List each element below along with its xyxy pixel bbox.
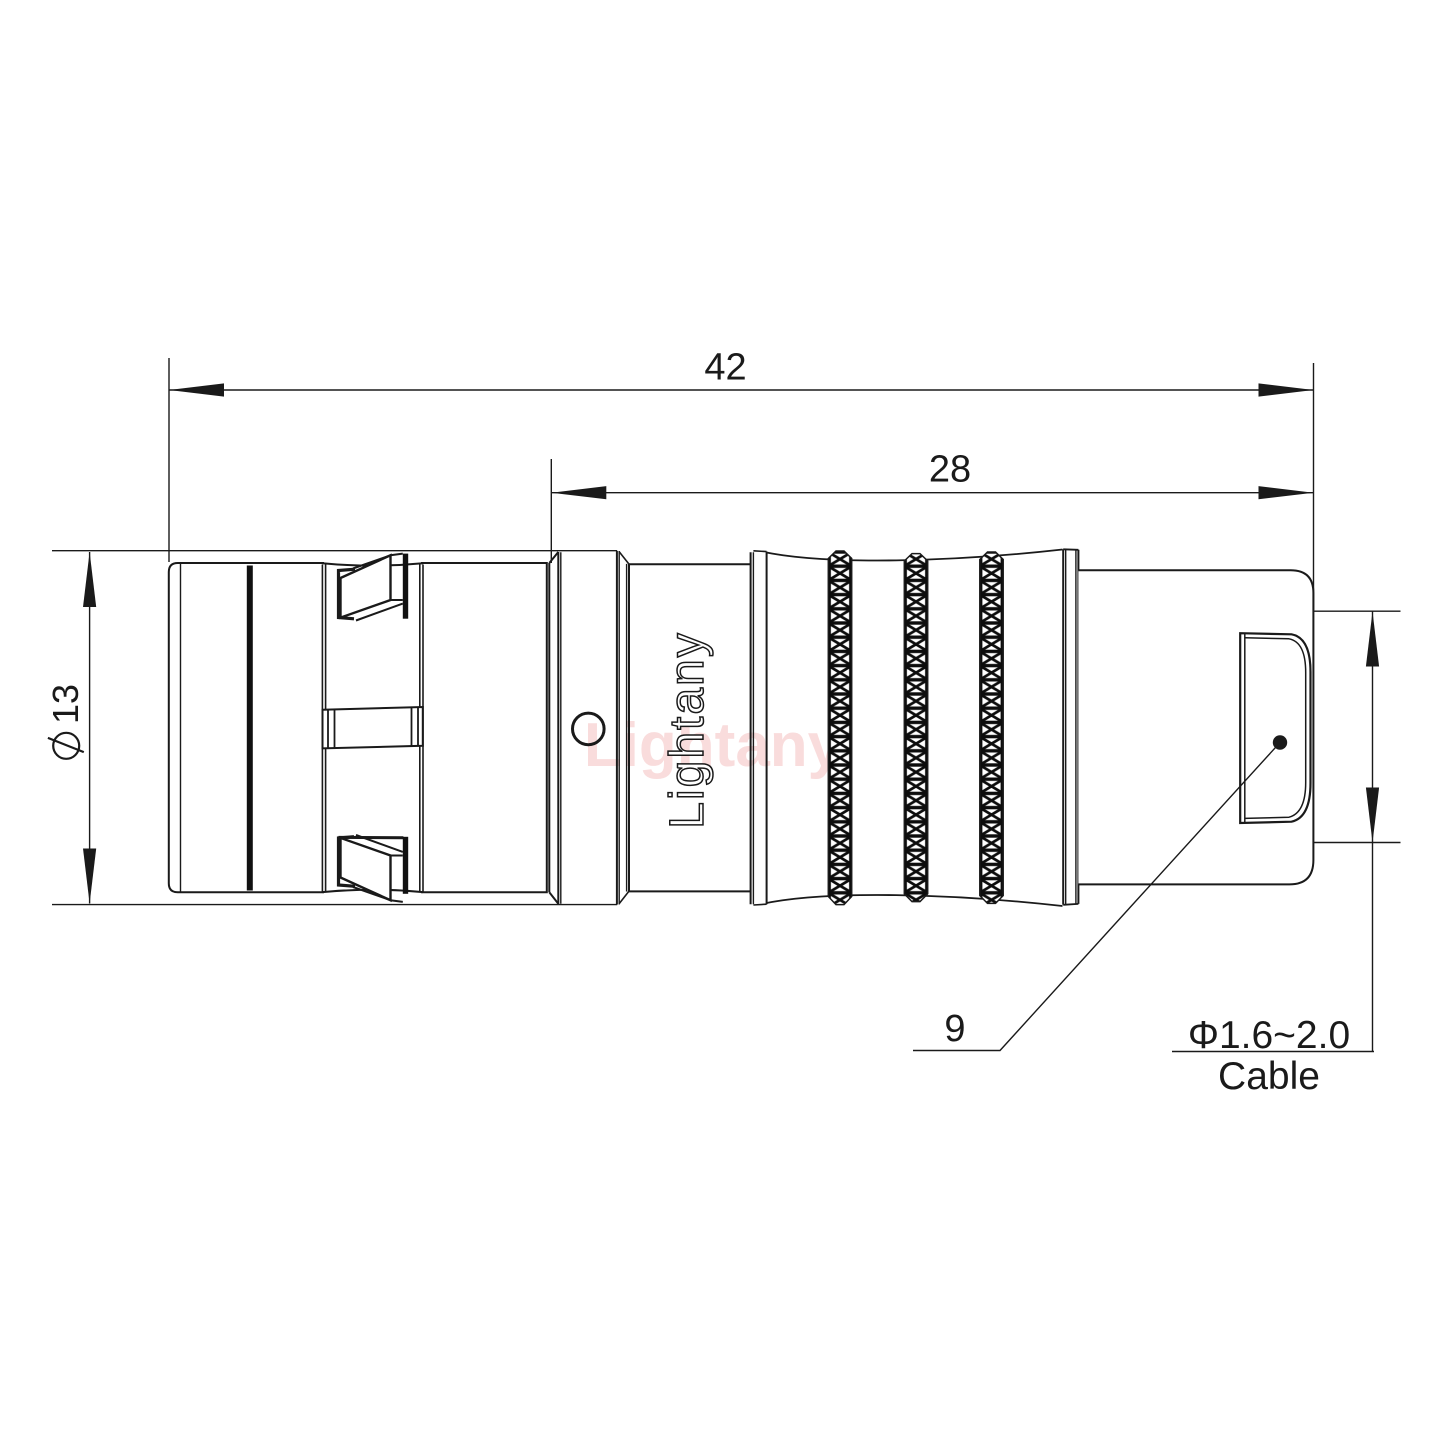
svg-text:Lightany: Lightany (661, 631, 714, 828)
svg-text:9: 9 (944, 1008, 965, 1050)
svg-text:13: 13 (45, 684, 86, 724)
svg-text:28: 28 (929, 449, 971, 491)
svg-text:Cable: Cable (1218, 1055, 1320, 1098)
svg-text:42: 42 (704, 347, 746, 389)
svg-text:Φ1.6~2.0: Φ1.6~2.0 (1188, 1014, 1350, 1057)
